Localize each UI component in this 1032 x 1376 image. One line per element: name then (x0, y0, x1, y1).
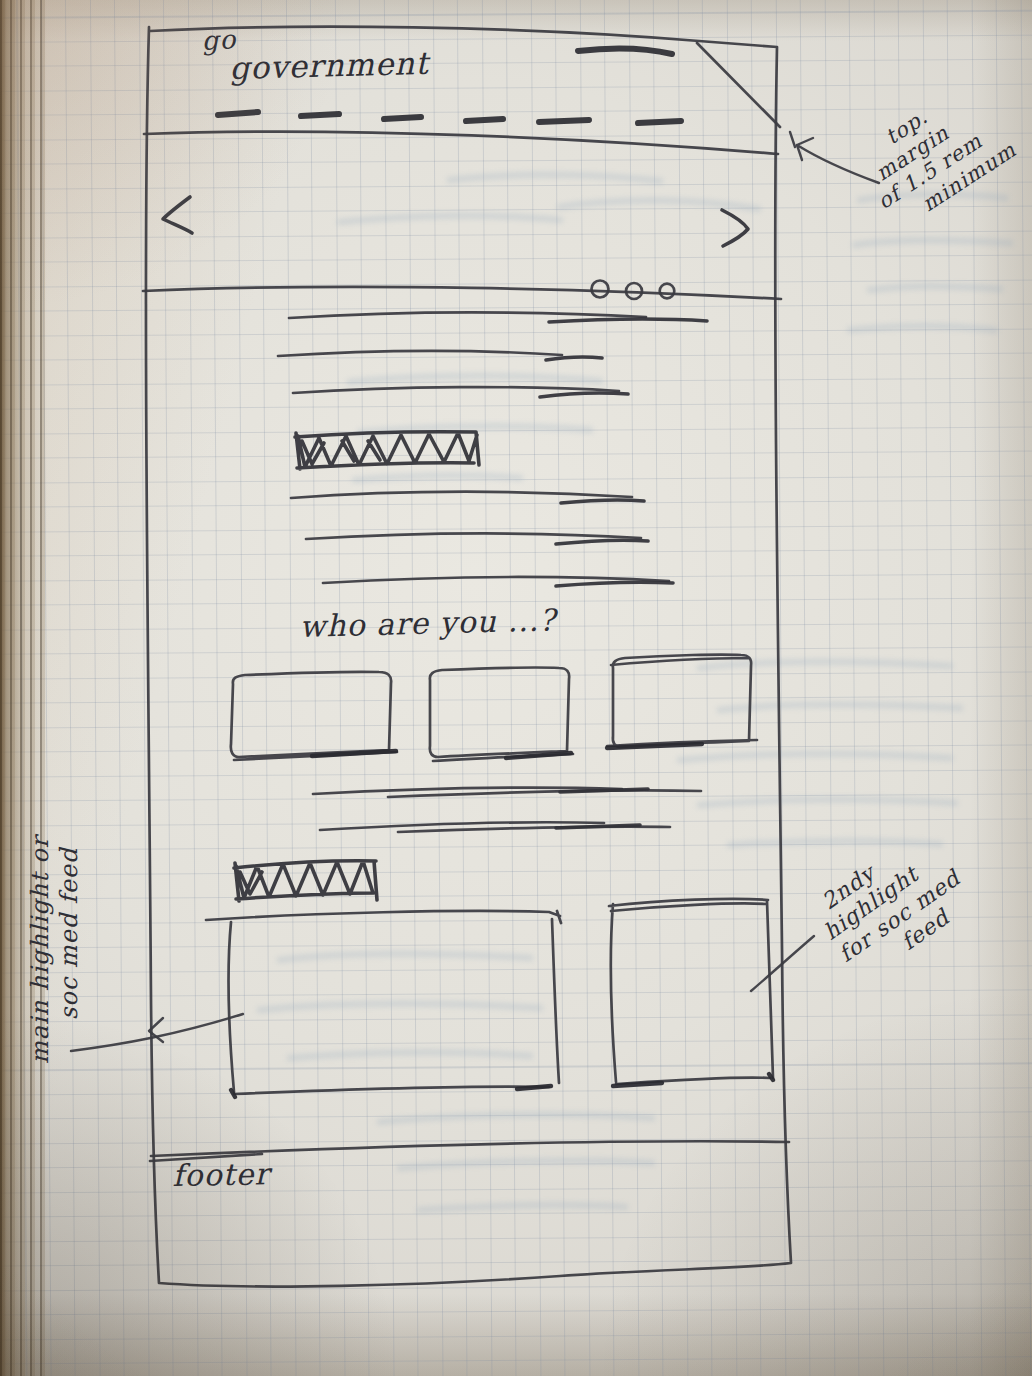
annotation-main-highlight-note: main highlight or soc med feed (26, 836, 84, 1064)
nav-menu-placeholder (218, 112, 681, 123)
card-placeholder (430, 668, 573, 761)
feed-block-outline (609, 899, 773, 1084)
header-divider-line (144, 132, 778, 154)
bleed-squiggle (260, 954, 540, 1058)
secondary-feed-block (609, 899, 773, 1086)
secondary-text-scribble (234, 861, 377, 901)
wireframe-sketch-layer (0, 0, 1032, 1376)
carousel-dot (660, 284, 675, 299)
bleed-squiggle (380, 1115, 652, 1210)
audience-cards (231, 655, 757, 761)
card-edge-accents (312, 744, 702, 758)
carousel-dot (592, 281, 609, 298)
corner-fold-line (697, 43, 780, 127)
annotation-line: main highlight or (26, 836, 55, 1064)
carousel-prev-icon (163, 197, 192, 233)
ink-bleed-through (260, 175, 1010, 1210)
card-placeholder (607, 655, 757, 747)
carousel-next-icon (722, 210, 748, 246)
highlighted-text-scribble (295, 432, 479, 469)
bleed-squiggle (340, 175, 758, 222)
hero-divider-line (143, 287, 781, 299)
bleed-squiggle (680, 662, 960, 845)
section-heading-question: who are you ...? (299, 602, 557, 644)
logo-underline (578, 49, 672, 54)
footer-label: footer (172, 1156, 270, 1193)
annotation-line: soc med feed (55, 836, 84, 1020)
carousel-dots (592, 281, 675, 300)
left-note-connector (71, 1014, 243, 1051)
logo-government-text: government (229, 45, 429, 86)
notebook-photo: go government who are you ...? footer to… (0, 0, 1032, 1376)
card-placeholder (231, 672, 397, 760)
